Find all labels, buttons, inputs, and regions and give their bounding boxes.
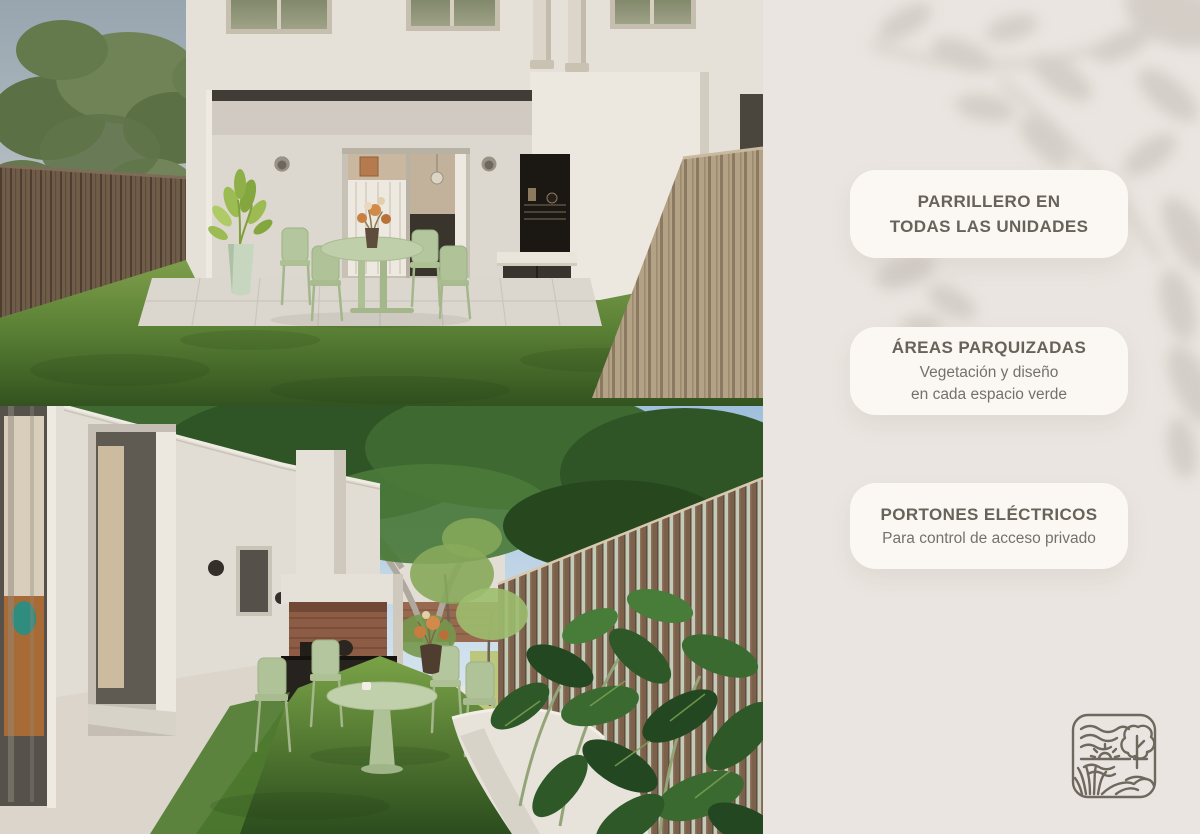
marketing-poster: PARRILLERO EN TODAS LAS UNIDADES ÁREAS P… — [0, 0, 1200, 834]
landscape-logo-icon — [1068, 710, 1160, 802]
side-window — [236, 546, 272, 616]
feature-card-title: ÁREAS PARQUIZADAS — [892, 335, 1086, 361]
patio-pavers — [138, 278, 602, 328]
glass-entry-door — [0, 406, 56, 808]
wall-sconce — [482, 157, 497, 172]
feature-card-parrillero: PARRILLERO EN TODAS LAS UNIDADES — [850, 170, 1128, 258]
feature-card-subtitle: Vegetación y diseño en cada espacio verd… — [911, 362, 1067, 407]
wall-sconce — [275, 157, 290, 172]
recessed-doorway — [88, 424, 176, 736]
feature-card-portones-electricos: PORTONES ELÉCTRICOS Para control de acce… — [850, 483, 1128, 569]
render-photo-backyard-patio — [0, 0, 763, 406]
feature-card-areas-parquizadas: ÁREAS PARQUIZADAS Vegetación y diseño en… — [850, 327, 1128, 415]
render-photo-side-yard — [0, 406, 763, 834]
feature-card-subtitle: Para control de acceso privado — [882, 528, 1096, 550]
feature-card-title: PORTONES ELÉCTRICOS — [881, 502, 1098, 528]
upstairs-window — [226, 0, 332, 34]
upstairs-window — [406, 0, 500, 31]
upstairs-window — [610, 0, 696, 29]
feature-card-title: PARRILLERO EN TODAS LAS UNIDADES — [890, 189, 1089, 240]
wall-sconce — [208, 560, 224, 576]
